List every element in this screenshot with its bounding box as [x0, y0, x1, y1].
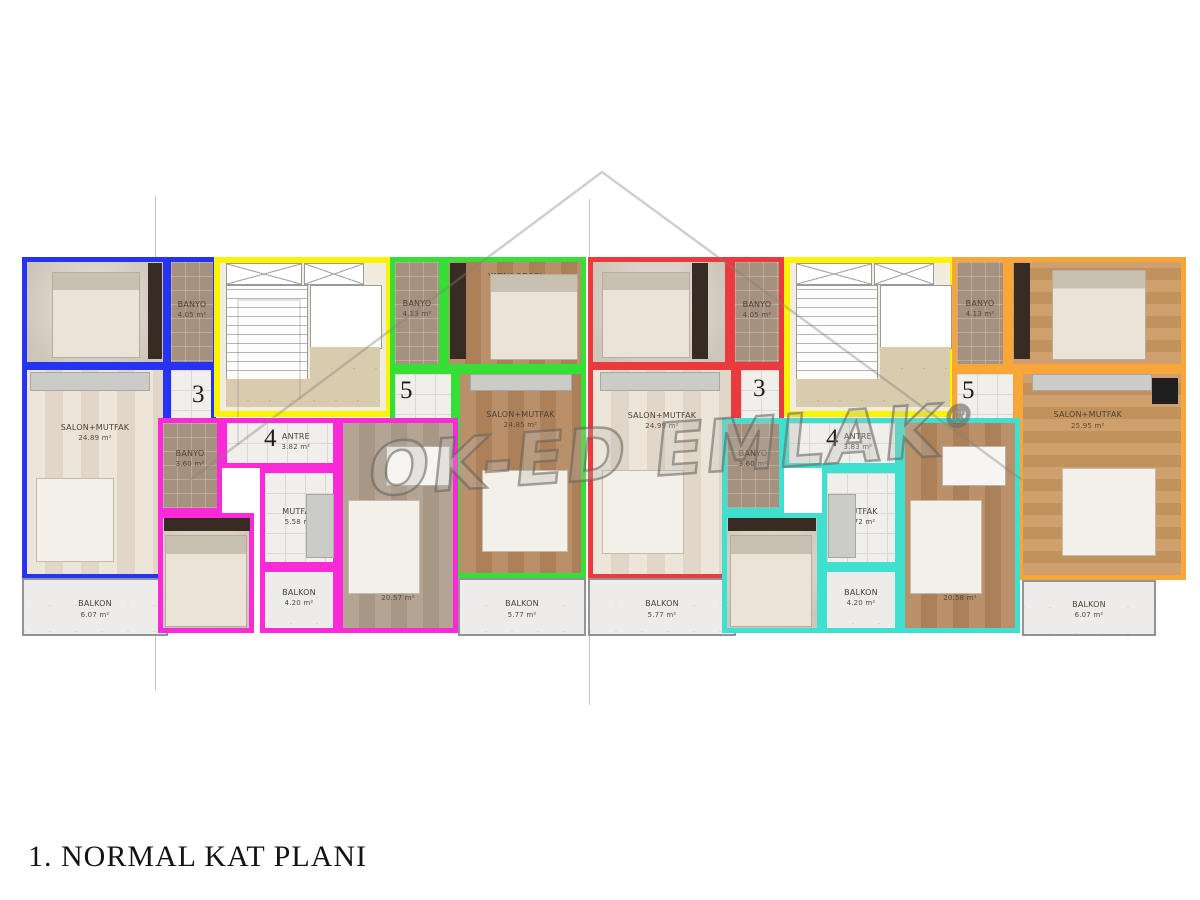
unit-number-3-left: 3	[192, 382, 205, 407]
unit-number-4-left: 4	[264, 426, 277, 451]
floor-plan-canvas: YATAK ODASI11.74 m² BANYO4.05 m² SALON+M…	[0, 0, 1200, 900]
page-title: 1. NORMAL KAT PLANI	[28, 840, 367, 873]
unit-number-3-right: 3	[753, 376, 766, 401]
unit-number-5-left: 5	[400, 378, 413, 403]
registered-mark-icon: ®	[942, 398, 976, 435]
